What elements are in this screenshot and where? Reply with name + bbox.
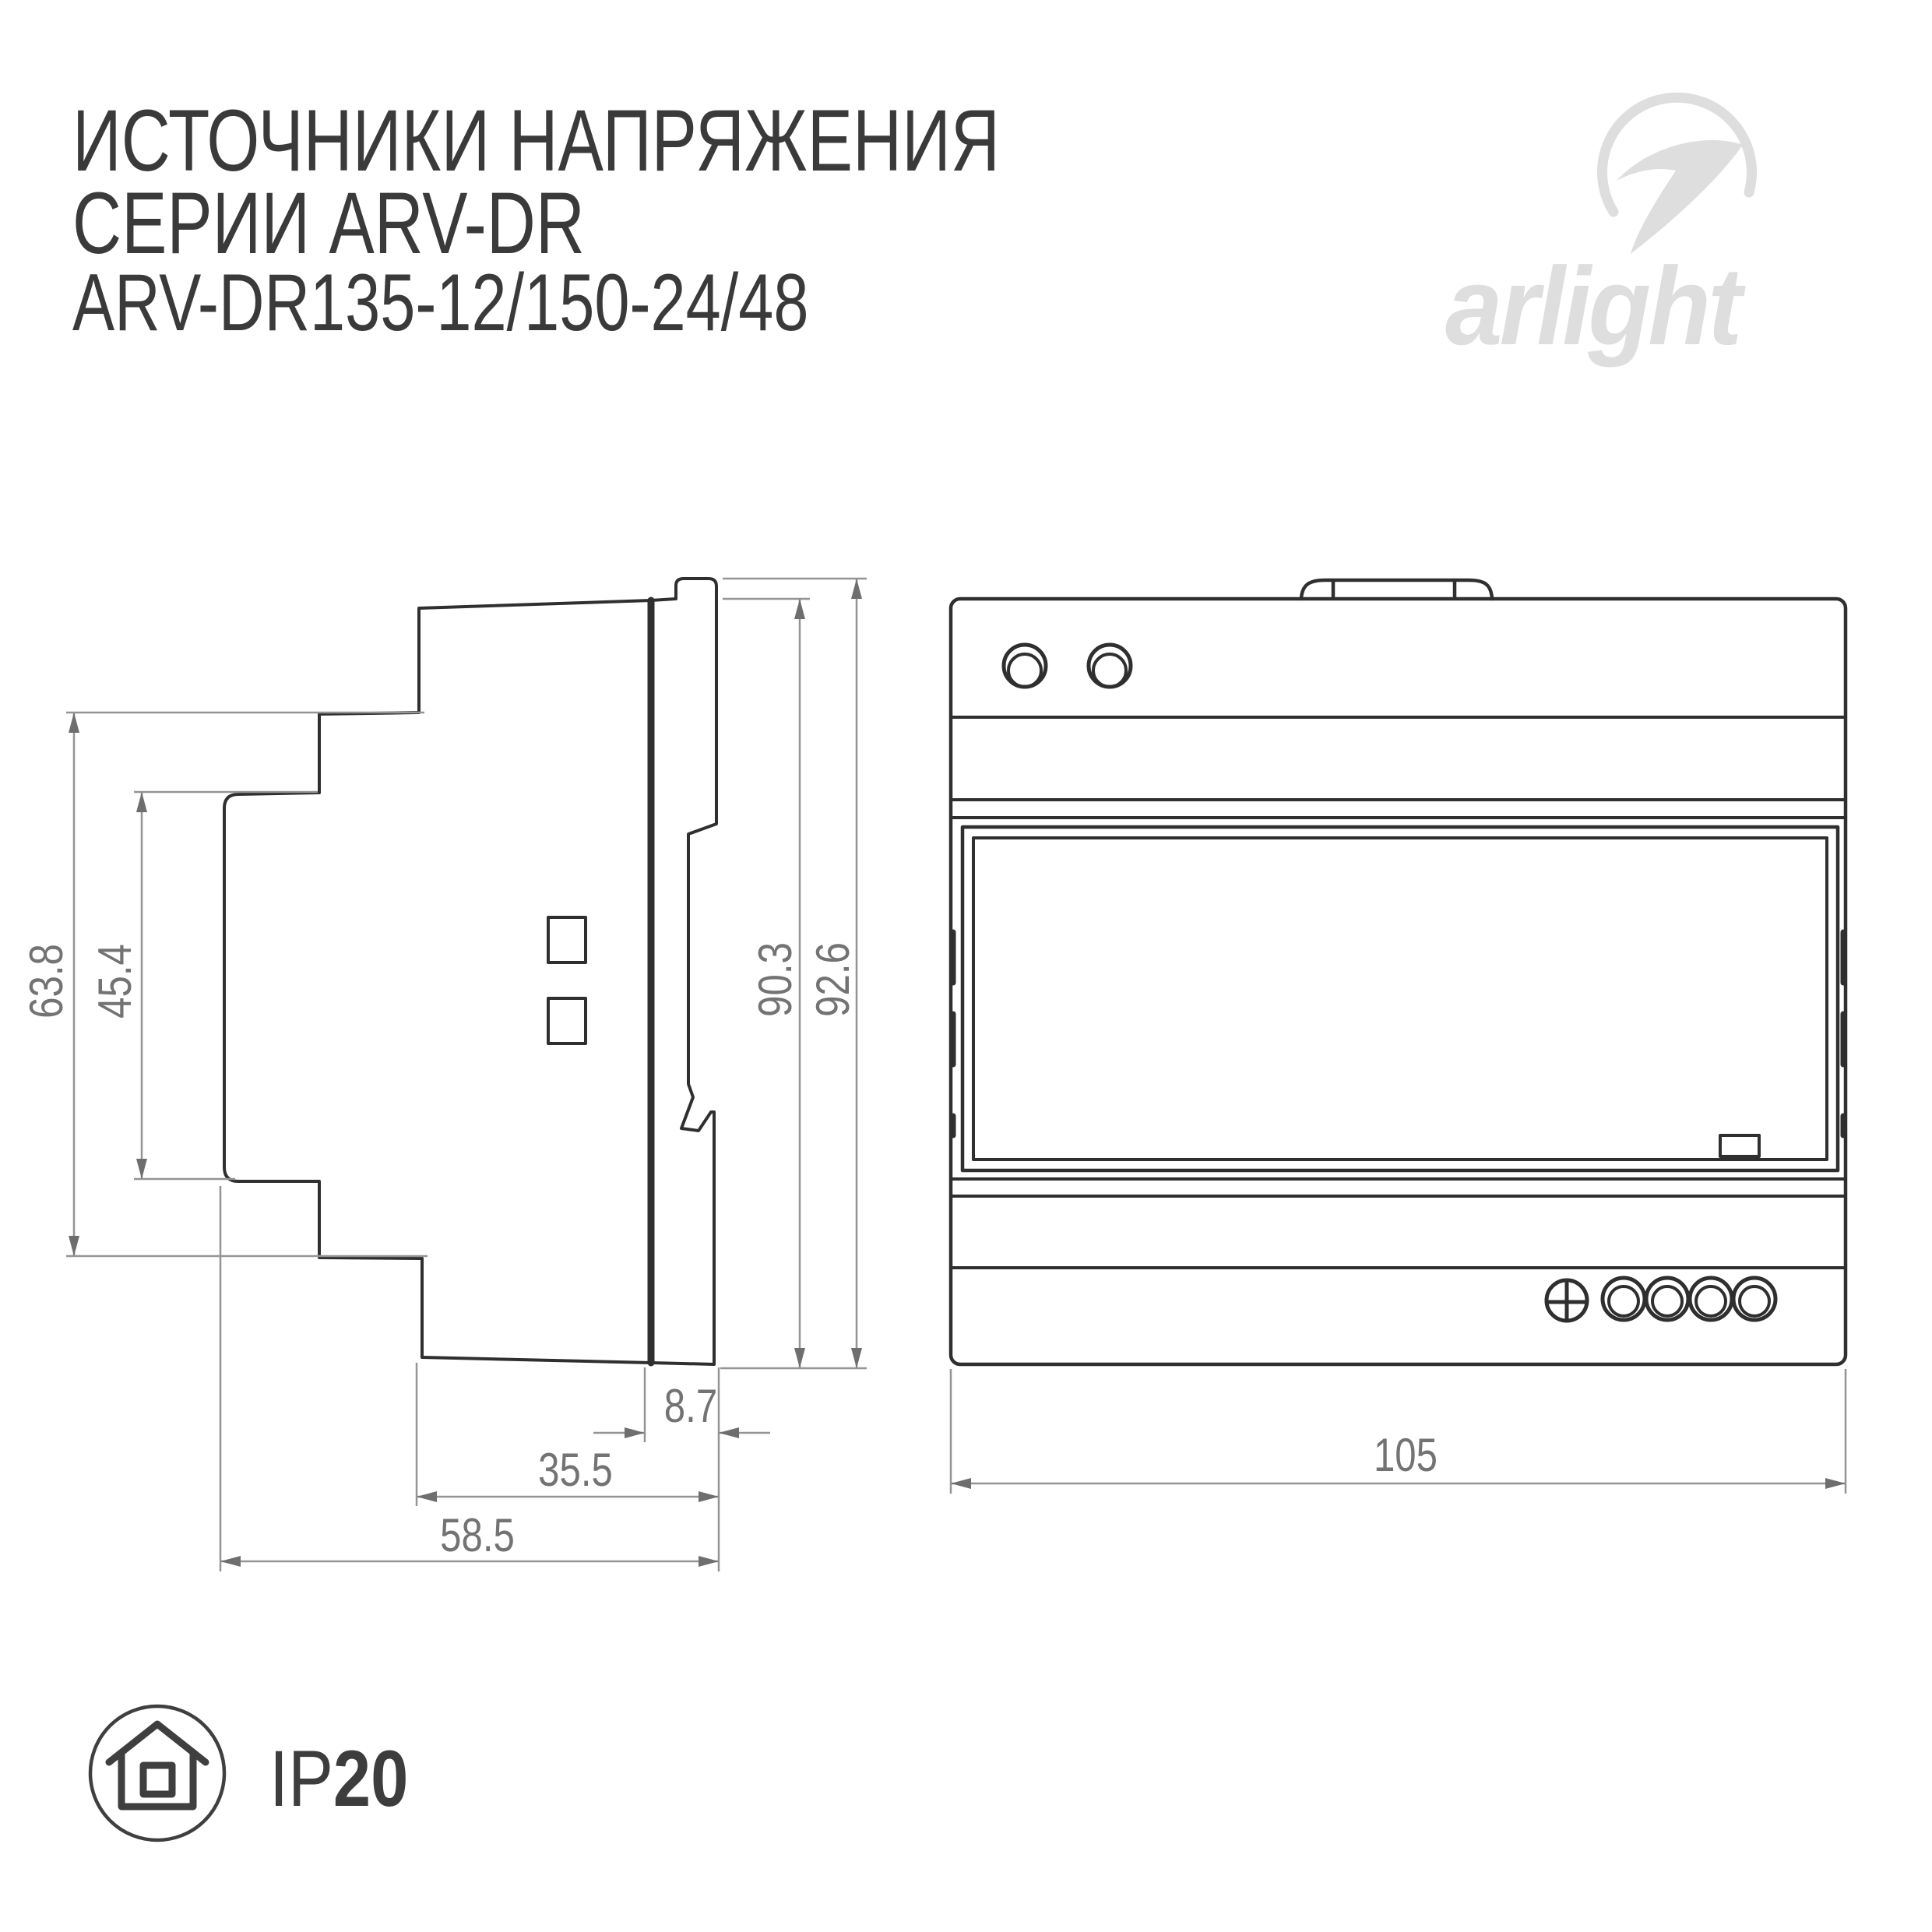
- ip-rating: IP20: [269, 1733, 408, 1825]
- adjustment-knob-2: [1089, 645, 1131, 687]
- front-view-body: [951, 599, 1846, 1364]
- dimension-arrows: [69, 579, 1846, 1567]
- dim-label-45-4: 45.4: [90, 911, 140, 1051]
- dim-label-90-3: 90.3: [751, 910, 801, 1050]
- dimension-lines: [66, 579, 1846, 1571]
- side-view-drawing: [224, 579, 716, 1364]
- side-view-outline: [224, 579, 716, 1364]
- dim-label-8-7: 8.7: [621, 1381, 761, 1431]
- label-panel-notch: [1720, 1135, 1759, 1156]
- ip20-house-icon: [90, 1706, 224, 1840]
- dim-label-63-8: 63.8: [22, 911, 72, 1051]
- adjustment-knob-1: [1004, 645, 1046, 687]
- arlight-logo-icon: [1603, 97, 1752, 254]
- technical-drawing: [0, 0, 1932, 1932]
- side-view-slot-upper: [548, 917, 586, 962]
- dim-label-105: 105: [1336, 1431, 1476, 1480]
- dim-label-58-5: 58.5: [407, 1511, 547, 1561]
- din-clip-tab: [1301, 580, 1492, 599]
- ip-rating-prefix: IP: [269, 1734, 333, 1823]
- dim-label-92-6: 92.6: [808, 910, 858, 1050]
- front-view-drawing: [951, 580, 1846, 1364]
- terminal-ports: [1603, 1278, 1775, 1320]
- dim-label-35-5: 35.5: [505, 1445, 646, 1495]
- label-panel-outer: [962, 827, 1838, 1170]
- terminal-screw-icon: [1547, 1280, 1587, 1321]
- label-panel-inner: [973, 838, 1827, 1160]
- side-view-slot-lower: [548, 998, 586, 1043]
- ip-rating-value: 20: [333, 1734, 408, 1823]
- edge-ticks: [953, 932, 1843, 1135]
